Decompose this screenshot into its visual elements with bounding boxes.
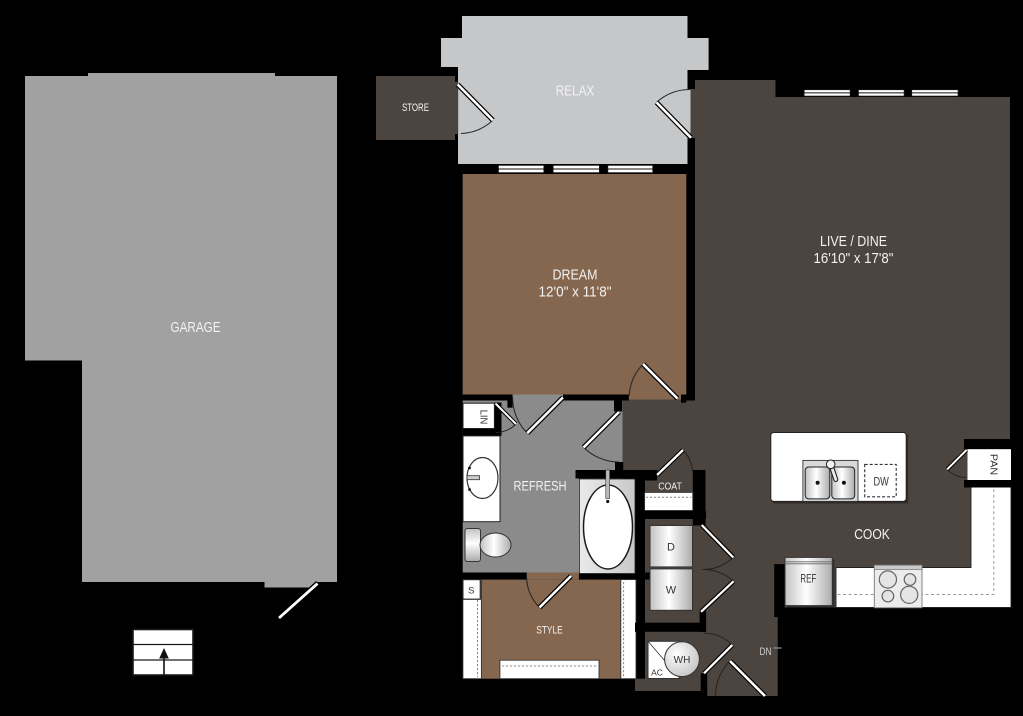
svg-text:STORE: STORE <box>402 102 429 114</box>
svg-text:COOK: COOK <box>854 526 890 543</box>
svg-text:LIN: LIN <box>478 410 489 425</box>
svg-text:DN: DN <box>760 646 772 658</box>
svg-text:S: S <box>468 586 474 597</box>
svg-text:PAN: PAN <box>988 454 999 475</box>
svg-text:STYLE: STYLE <box>536 625 563 637</box>
svg-text:DREAM: DREAM <box>553 267 598 284</box>
svg-text:GARAGE: GARAGE <box>171 319 221 336</box>
svg-text:RELAX: RELAX <box>556 83 595 100</box>
svg-text:REF: REF <box>800 573 816 585</box>
svg-text:DW: DW <box>874 477 889 489</box>
svg-text:COAT: COAT <box>658 482 682 493</box>
svg-text:WH: WH <box>674 655 691 666</box>
svg-text:W: W <box>666 585 677 597</box>
svg-text:16'10" x 17'8": 16'10" x 17'8" <box>814 250 894 267</box>
svg-text:D: D <box>667 542 675 554</box>
svg-text:LIVE / DINE: LIVE / DINE <box>820 233 887 250</box>
svg-text:12'0" x 11'8": 12'0" x 11'8" <box>539 283 612 300</box>
svg-text:REFRESH: REFRESH <box>514 479 567 494</box>
svg-text:AC: AC <box>651 668 663 678</box>
